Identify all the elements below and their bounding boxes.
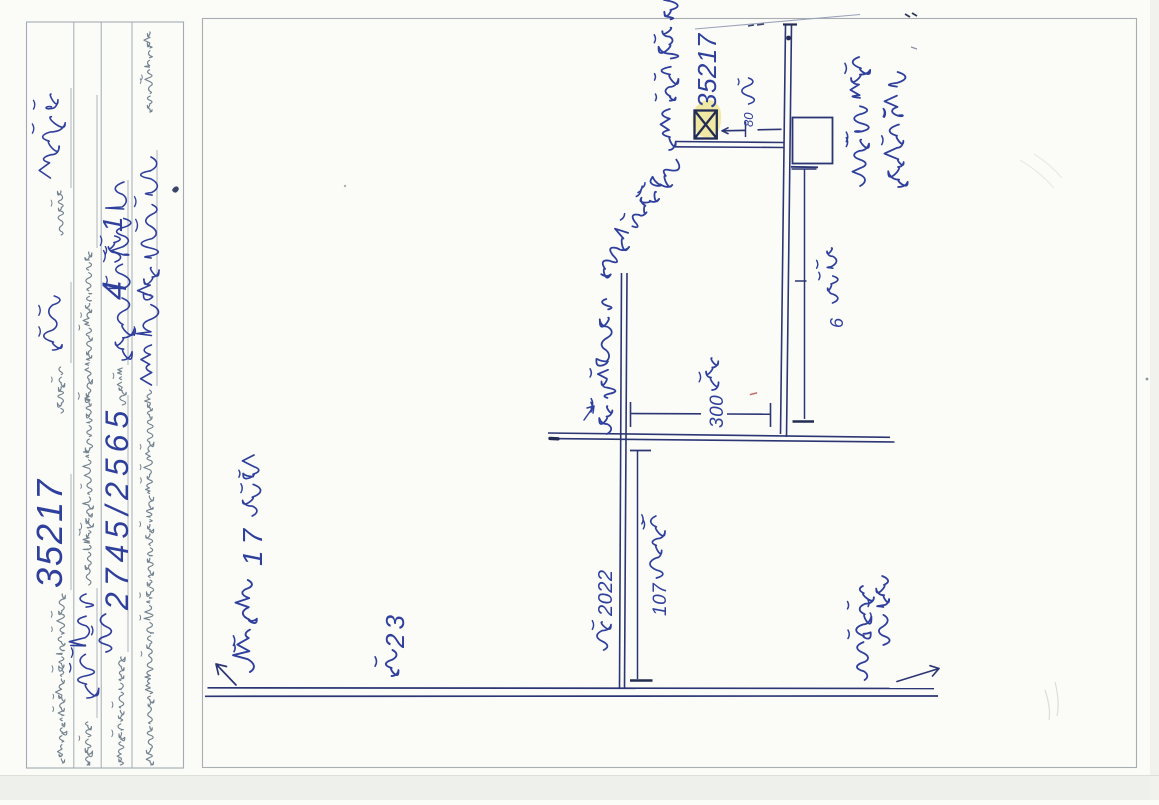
svg-text:17: 17 (237, 523, 268, 566)
svg-text:35217: 35217 (29, 478, 70, 588)
svg-text:2022: 2022 (595, 570, 617, 618)
svg-text:300: 300 (707, 395, 728, 428)
svg-text:80: 80 (741, 112, 756, 127)
svg-text:35217: 35217 (692, 32, 722, 108)
svg-text:107: 107 (650, 582, 671, 616)
svg-text:23: 23 (380, 611, 410, 649)
svg-text:6: 6 (827, 317, 847, 328)
svg-text:2745/2565: 2745/2565 (99, 405, 135, 611)
